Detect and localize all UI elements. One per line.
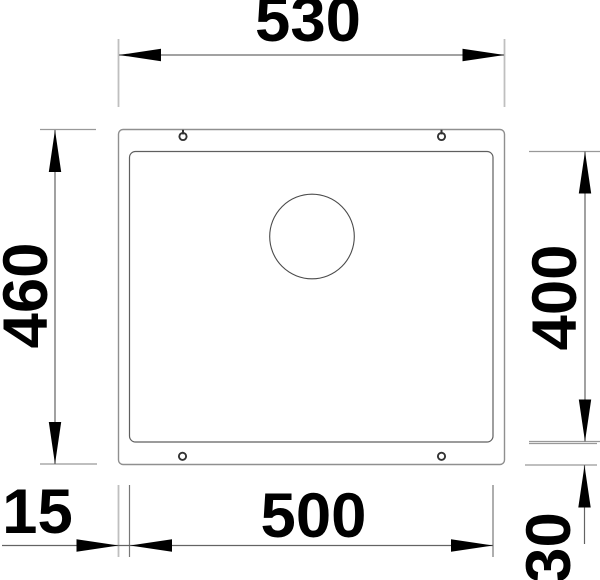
svg-text:460: 460 xyxy=(0,243,61,349)
svg-text:500: 500 xyxy=(261,481,367,551)
svg-text:530: 530 xyxy=(255,0,361,55)
svg-text:15: 15 xyxy=(2,477,73,547)
svg-text:30: 30 xyxy=(514,512,584,580)
svg-text:400: 400 xyxy=(520,245,590,351)
